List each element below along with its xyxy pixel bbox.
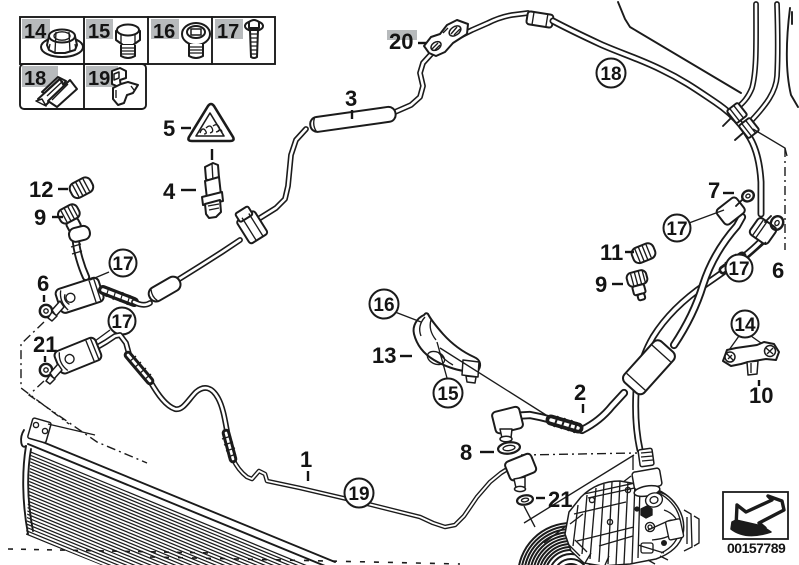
svg-text:20: 20 <box>389 29 413 54</box>
svg-text:2: 2 <box>574 380 586 405</box>
svg-text:18: 18 <box>24 68 46 90</box>
svg-text:3: 3 <box>345 86 357 111</box>
svg-text:6: 6 <box>772 258 784 283</box>
svg-text:16: 16 <box>373 295 394 316</box>
svg-text:7: 7 <box>708 178 720 203</box>
svg-text:13: 13 <box>372 343 396 368</box>
svg-text:16: 16 <box>153 21 175 43</box>
svg-text:11: 11 <box>600 240 623 265</box>
svg-text:6: 6 <box>37 271 49 296</box>
svg-text:5: 5 <box>163 116 175 141</box>
svg-text:19: 19 <box>88 68 110 90</box>
svg-text:17: 17 <box>666 219 687 240</box>
svg-text:17: 17 <box>728 259 749 280</box>
svg-text:14: 14 <box>24 21 47 43</box>
svg-text:9: 9 <box>595 272 607 297</box>
svg-text:21: 21 <box>548 487 572 512</box>
svg-text:18: 18 <box>600 64 621 85</box>
svg-text:9: 9 <box>34 205 46 230</box>
svg-text:14: 14 <box>734 315 756 336</box>
svg-text:15: 15 <box>88 21 110 43</box>
svg-text:00157789: 00157789 <box>727 540 786 556</box>
svg-text:1: 1 <box>300 447 312 472</box>
svg-text:10: 10 <box>749 383 773 408</box>
svg-text:17: 17 <box>111 312 132 333</box>
svg-text:21: 21 <box>33 332 57 357</box>
svg-text:8: 8 <box>460 440 472 465</box>
svg-text:19: 19 <box>348 484 369 505</box>
svg-text:15: 15 <box>437 384 459 405</box>
svg-text:17: 17 <box>217 21 239 43</box>
svg-text:12: 12 <box>29 177 53 202</box>
svg-text:17: 17 <box>112 254 133 275</box>
svg-text:4: 4 <box>163 179 176 204</box>
